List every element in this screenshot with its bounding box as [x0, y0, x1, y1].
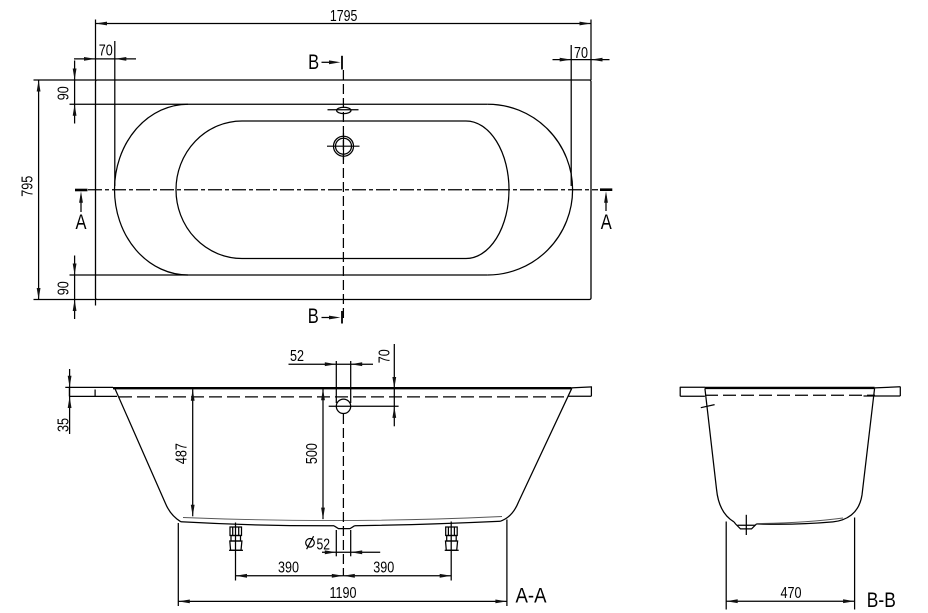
- svg-text:390: 390: [373, 559, 394, 576]
- svg-text:A-A: A-A: [516, 585, 547, 608]
- svg-text:470: 470: [781, 585, 802, 602]
- svg-text:B: B: [308, 305, 319, 328]
- svg-text:52: 52: [317, 536, 331, 553]
- svg-text:35: 35: [55, 418, 72, 432]
- svg-text:1795: 1795: [330, 8, 358, 25]
- svg-text:A: A: [76, 211, 87, 234]
- svg-text:A: A: [601, 211, 612, 234]
- svg-text:70: 70: [574, 45, 588, 62]
- svg-text:70: 70: [99, 42, 113, 59]
- svg-text:90: 90: [56, 281, 73, 295]
- svg-text:52: 52: [290, 348, 304, 365]
- svg-text:390: 390: [278, 559, 299, 576]
- svg-text:795: 795: [19, 176, 36, 197]
- svg-text:70: 70: [377, 349, 394, 363]
- svg-text:B-B: B-B: [867, 589, 896, 612]
- svg-text:B: B: [308, 51, 319, 74]
- svg-text:487: 487: [174, 443, 191, 464]
- svg-text:500: 500: [304, 443, 321, 464]
- svg-text:1190: 1190: [330, 585, 357, 602]
- svg-text:90: 90: [56, 86, 73, 100]
